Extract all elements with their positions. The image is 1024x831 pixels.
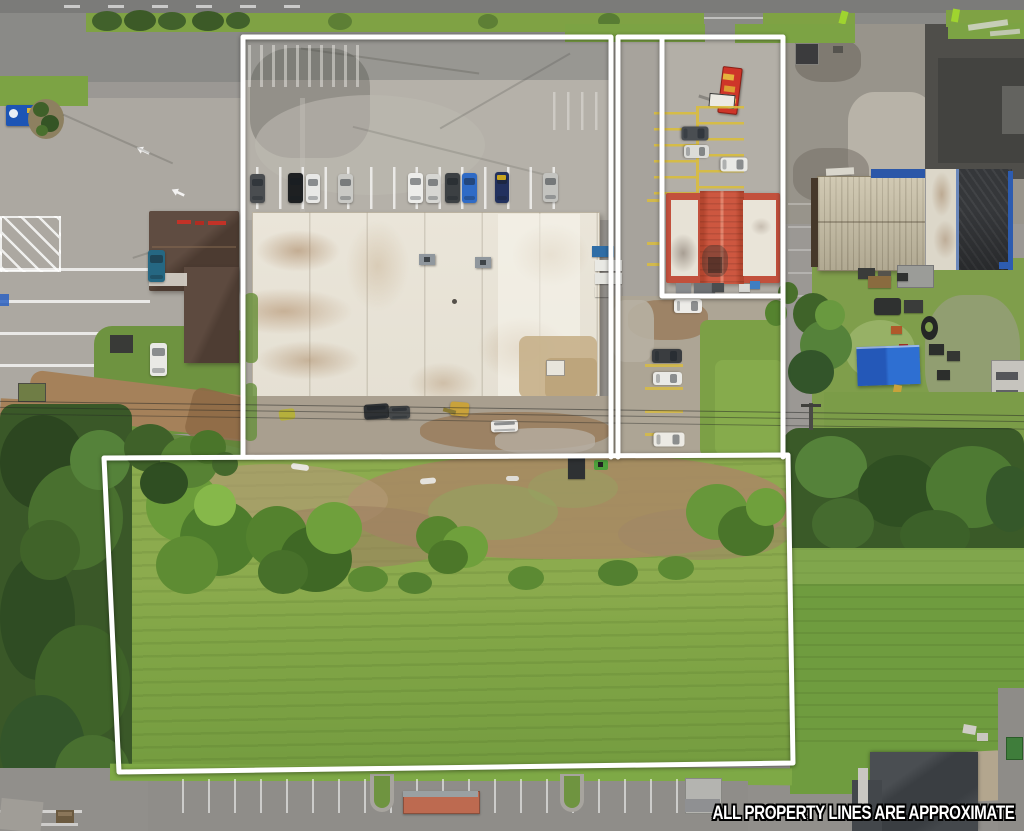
rear-field-outline <box>104 455 793 772</box>
restaurant-pad-divider <box>662 37 783 296</box>
main-lot-outline <box>243 37 611 457</box>
east-strip-outline <box>618 37 783 457</box>
property-line-overlay <box>0 0 1024 831</box>
caption-disclaimer: ALL PROPERTY LINES ARE APPROXIMATE <box>712 803 1014 825</box>
aerial-photo-scene: ALL PROPERTY LINES ARE APPROXIMATE <box>0 0 1024 831</box>
